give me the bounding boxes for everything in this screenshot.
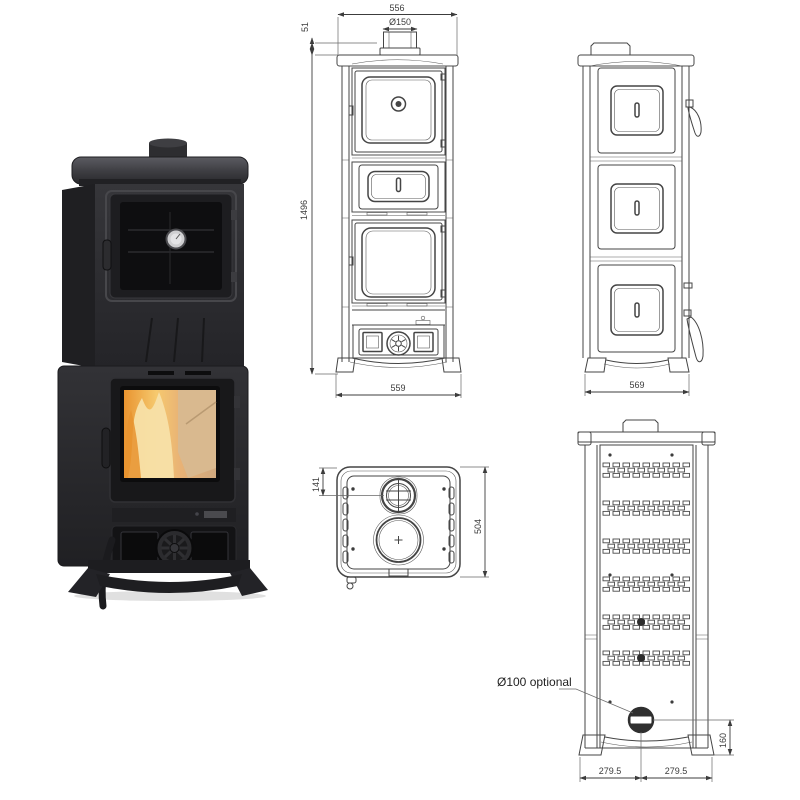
dim-top-depth: 504 xyxy=(473,519,483,534)
photo-grille-right xyxy=(191,532,228,564)
dim-base-width: 559 xyxy=(390,383,405,393)
back-air-outlet xyxy=(629,708,653,732)
front-drawer xyxy=(368,172,429,202)
photo-base-arch xyxy=(96,574,242,593)
back-vent-slots xyxy=(603,463,690,665)
dim-outlet-height: 160 xyxy=(718,733,728,748)
front-view: 556 Ø150 51 1496 559 xyxy=(299,3,461,398)
photo-oven-hinge-bottom xyxy=(231,272,237,282)
back-plug-lower xyxy=(637,654,645,662)
product-photo xyxy=(58,139,268,607)
top-flue-collar xyxy=(380,477,417,514)
dim-collar-height: 51 xyxy=(300,22,310,32)
photo-oven-hinge-top xyxy=(231,210,237,220)
dim-depth: 569 xyxy=(629,380,644,390)
front-rosette xyxy=(387,332,410,355)
top-hot-plate xyxy=(374,515,424,565)
dim-right-half: 279.5 xyxy=(665,766,688,776)
drawing-canvas: 556 Ø150 51 1496 559 xyxy=(0,0,800,800)
dim-left-half: 279.5 xyxy=(599,766,622,776)
photo-oven-handle xyxy=(103,240,111,270)
back-view: Ø100 optional 160 279.5 279.5 xyxy=(497,420,734,782)
front-drawer-handle xyxy=(397,178,401,192)
dim-total-height: 1496 xyxy=(299,200,309,220)
dim-flue-diameter: Ø150 xyxy=(389,17,411,27)
photo-fire-handle xyxy=(102,428,110,468)
photo-lower-body xyxy=(58,366,268,606)
stove-datasheet: 556 Ø150 51 1496 559 xyxy=(0,0,800,800)
back-plug-upper xyxy=(637,618,645,626)
side-door-handle-lower xyxy=(684,283,703,362)
photo-firewood xyxy=(178,390,216,478)
dim-top-width: 556 xyxy=(389,3,404,13)
front-oven-door xyxy=(362,77,435,143)
side-view: 569 xyxy=(578,43,703,396)
top-view: 141 504 xyxy=(311,467,489,589)
photo-upper-body xyxy=(62,184,244,368)
photo-pedestal xyxy=(88,560,250,573)
side-door-handle-upper xyxy=(686,100,701,136)
label-outlet: Ø100 optional xyxy=(497,675,572,689)
photo-grille-left xyxy=(121,532,158,564)
photo-logo-plate xyxy=(204,511,227,518)
dim-flue-offset: 141 xyxy=(311,477,321,492)
front-fire-door xyxy=(362,228,435,297)
